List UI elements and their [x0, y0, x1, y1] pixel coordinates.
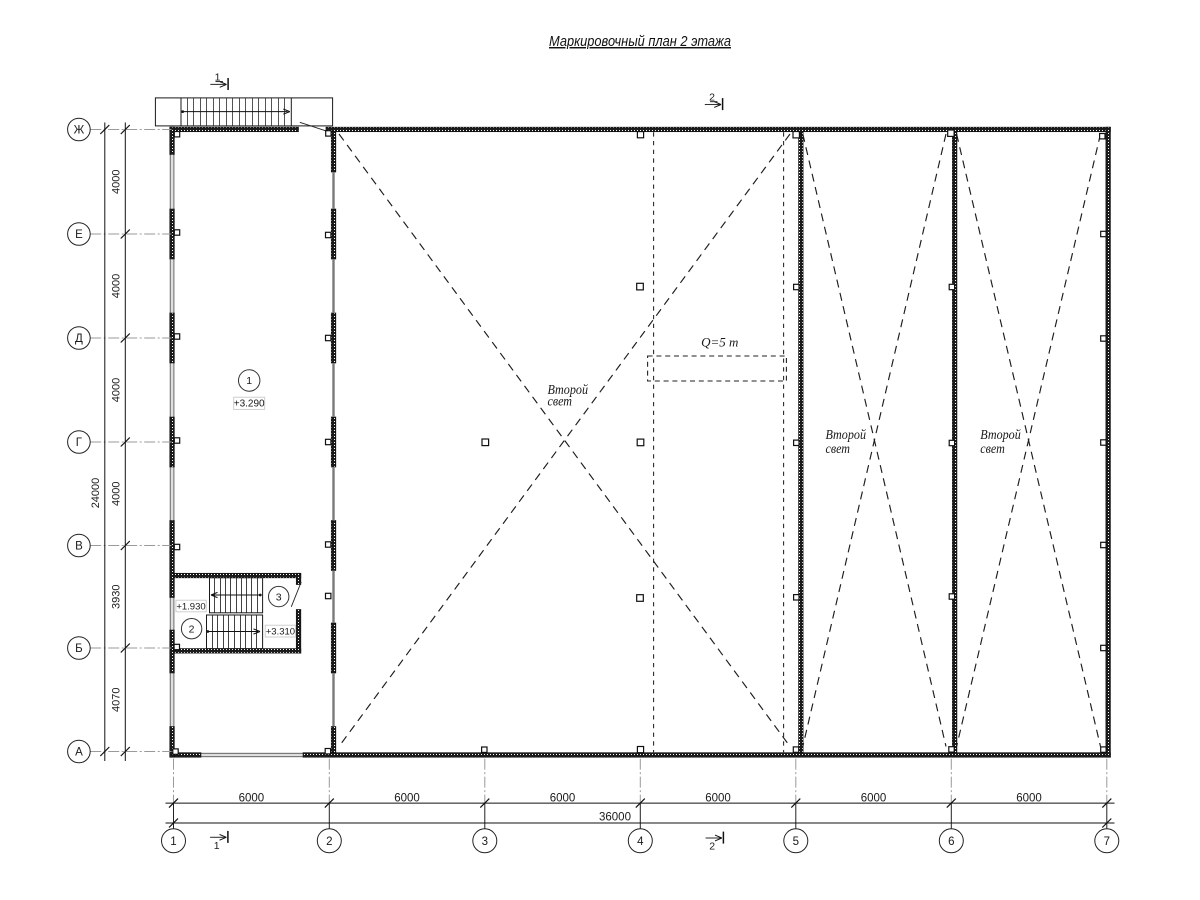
svg-text:4000: 4000 [111, 378, 123, 402]
svg-text:Е: Е [75, 229, 83, 241]
svg-text:36000: 36000 [599, 812, 631, 824]
svg-text:6000: 6000 [861, 792, 887, 804]
svg-text:Q=5 т: Q=5 т [701, 334, 738, 349]
svg-text:4000: 4000 [111, 274, 123, 298]
svg-text:3: 3 [276, 591, 282, 603]
svg-text:3930: 3930 [111, 585, 123, 609]
svg-text:2: 2 [326, 836, 332, 848]
svg-text:2: 2 [709, 841, 715, 853]
svg-text:3: 3 [482, 836, 488, 848]
svg-text:Б: Б [75, 643, 83, 655]
svg-text:Г: Г [76, 437, 83, 449]
svg-text:24000: 24000 [90, 478, 102, 509]
svg-text:Ж: Ж [74, 125, 85, 137]
svg-text:6000: 6000 [550, 792, 576, 804]
svg-text:2: 2 [189, 623, 195, 635]
svg-text:свет: свет [980, 441, 1005, 456]
svg-text:4070: 4070 [111, 688, 123, 712]
svg-text:6000: 6000 [1016, 792, 1042, 804]
svg-text:1: 1 [170, 836, 176, 848]
svg-text:4000: 4000 [111, 170, 123, 194]
svg-text:1: 1 [246, 375, 252, 387]
svg-text:Маркировочный план 2 этажа: Маркировочный план 2 этажа [549, 34, 731, 50]
svg-text:Второй: Второй [826, 427, 867, 442]
svg-text:5: 5 [793, 836, 799, 848]
svg-text:7: 7 [1104, 836, 1110, 848]
svg-text:6: 6 [948, 836, 954, 848]
svg-text:Второй: Второй [980, 427, 1021, 442]
svg-text:+1.930: +1.930 [176, 601, 205, 612]
svg-text:Д: Д [75, 333, 83, 345]
svg-text:4: 4 [637, 836, 644, 848]
svg-text:6000: 6000 [705, 792, 731, 804]
svg-text:свет: свет [548, 393, 573, 408]
svg-text:В: В [75, 541, 83, 553]
svg-text:6000: 6000 [394, 792, 420, 804]
svg-text:А: А [75, 747, 83, 759]
svg-text:6000: 6000 [239, 792, 265, 804]
svg-text:1: 1 [214, 840, 220, 852]
svg-text:+3.290: +3.290 [234, 399, 265, 410]
svg-text:свет: свет [826, 441, 851, 456]
svg-text:4000: 4000 [111, 482, 123, 506]
svg-text:+3.310: +3.310 [266, 626, 295, 637]
